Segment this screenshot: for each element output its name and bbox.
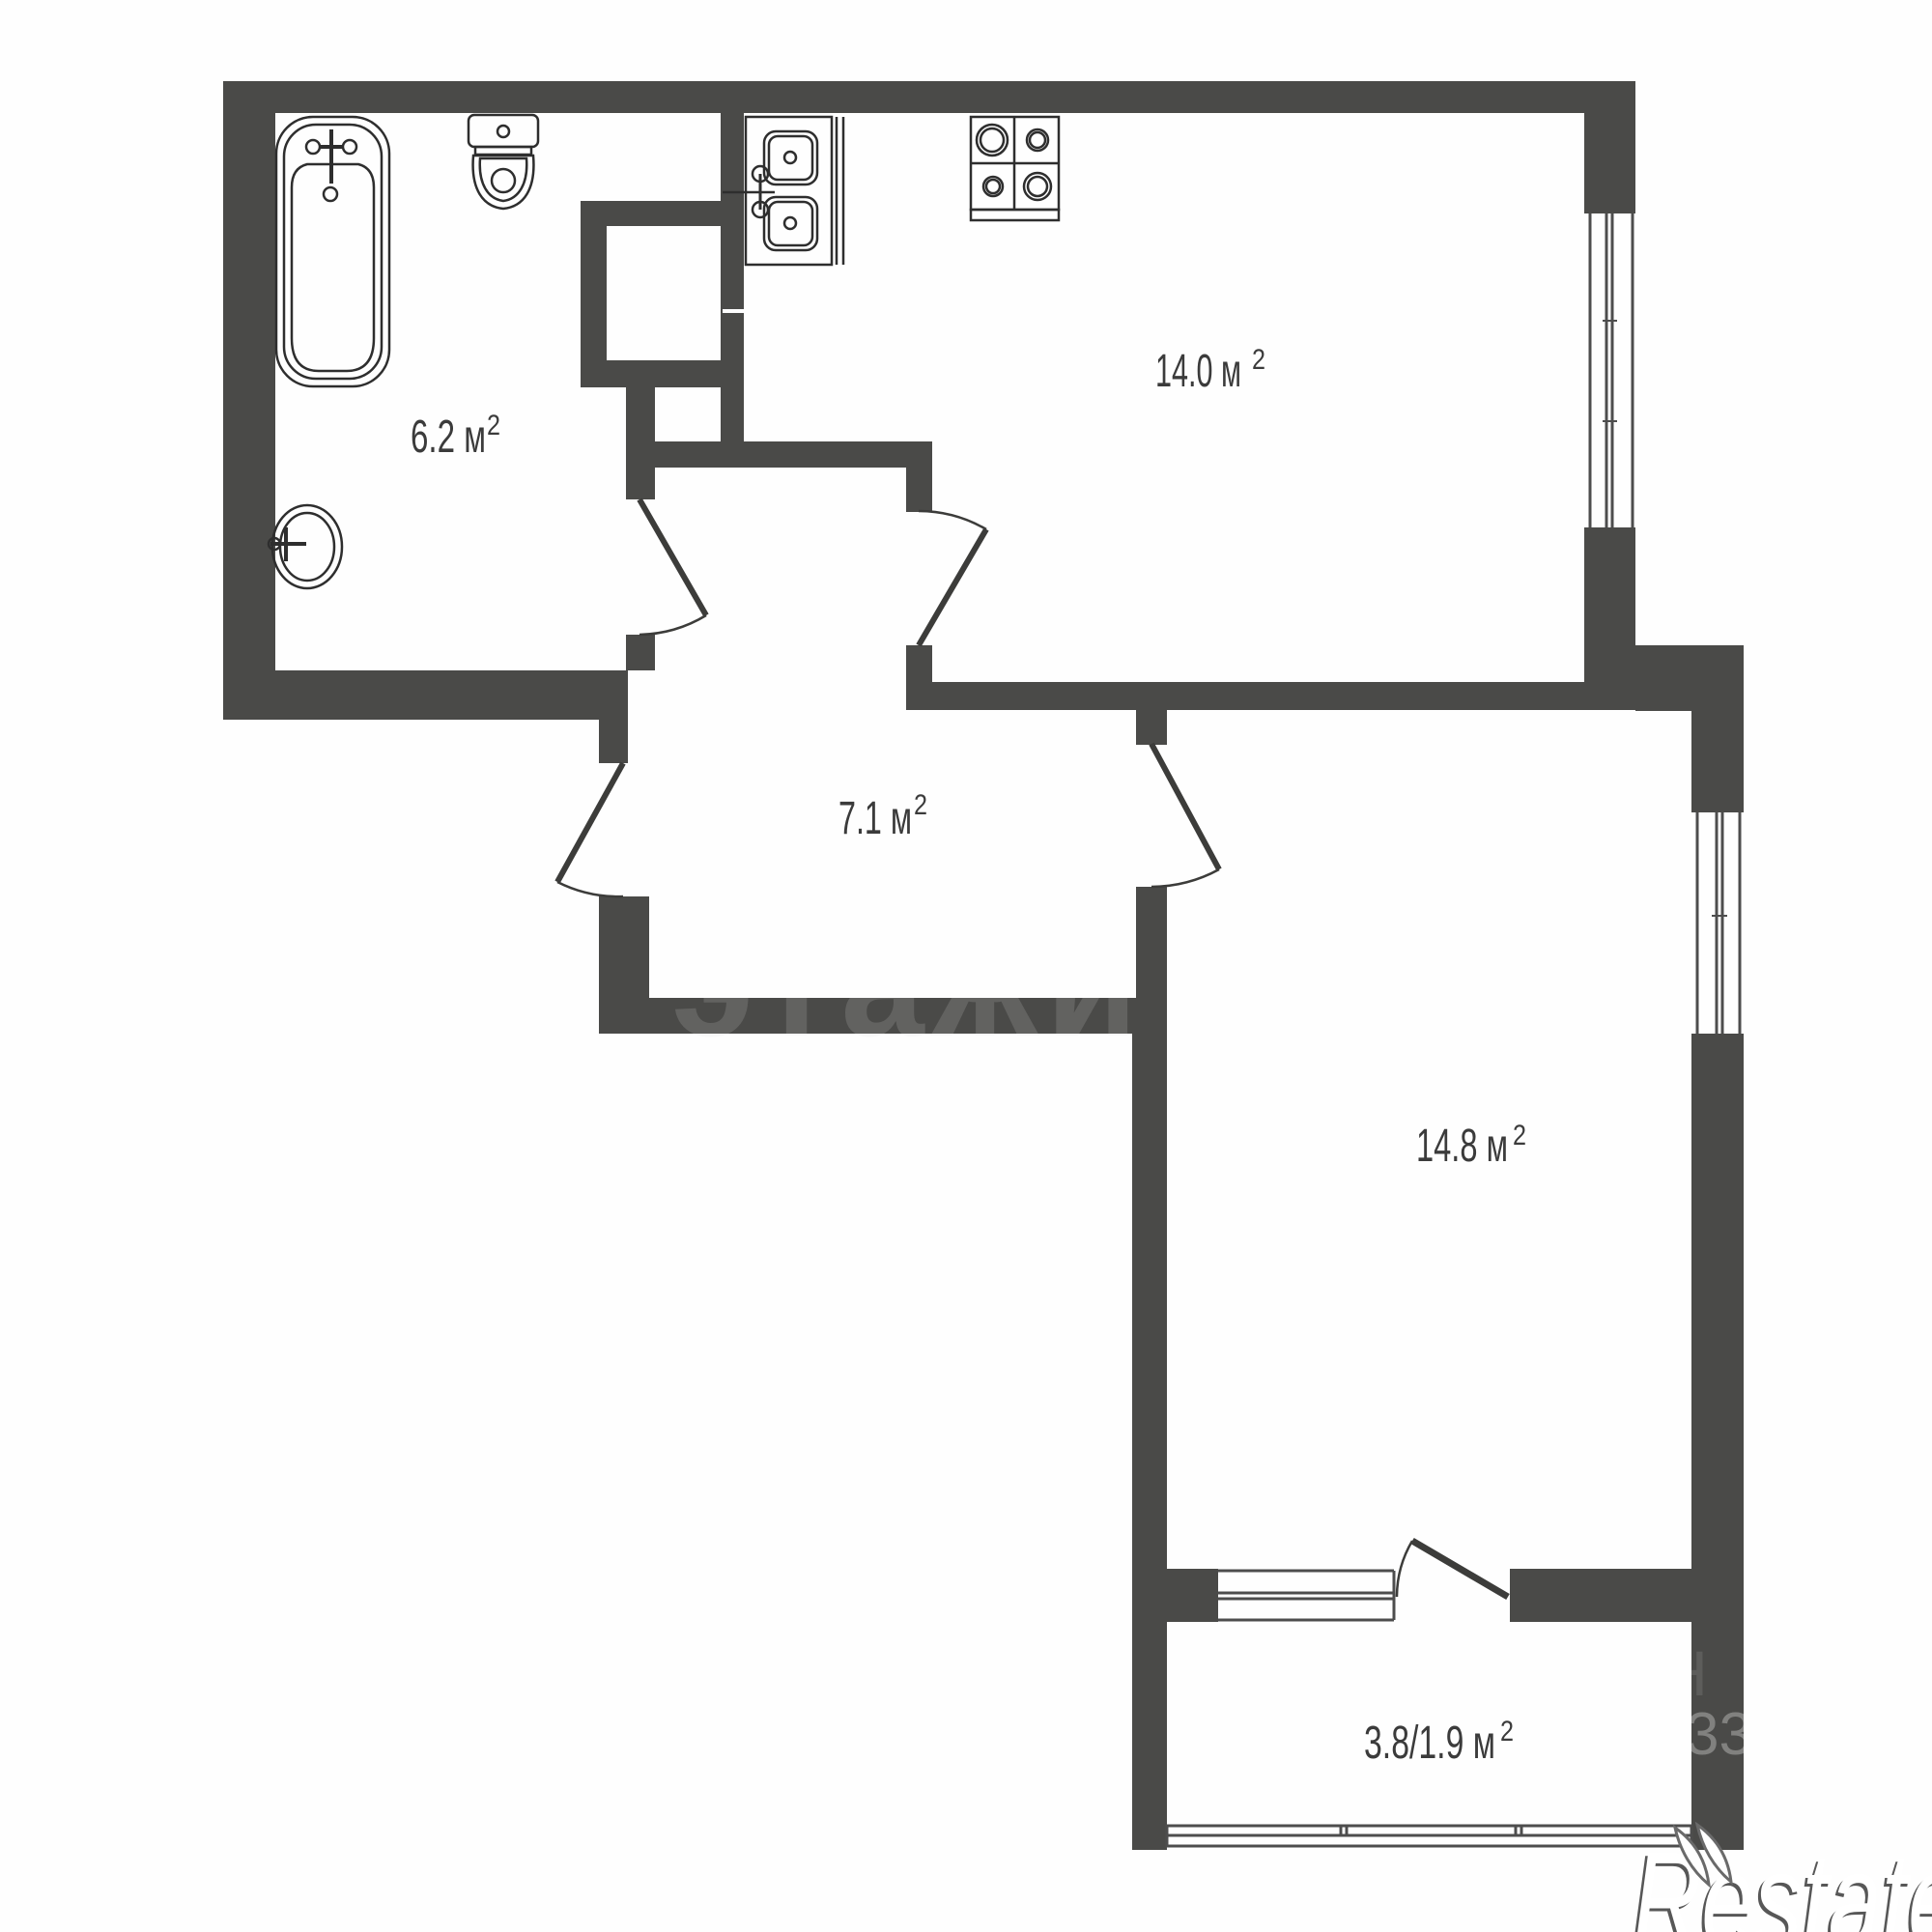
svg-text:33: 33 xyxy=(1686,1701,1752,1768)
svg-text:6.2 м: 6.2 м xyxy=(411,412,486,463)
svg-text:2: 2 xyxy=(1500,1716,1514,1747)
svg-text:14.0 м: 14.0 м xyxy=(1155,346,1241,397)
svg-text:этажи: этажи xyxy=(671,900,1146,1067)
svg-text:3.8/1.9 м: 3.8/1.9 м xyxy=(1364,1718,1495,1769)
svg-text:2: 2 xyxy=(1252,344,1265,376)
svg-text:2: 2 xyxy=(914,789,927,821)
svg-text:2: 2 xyxy=(1513,1120,1526,1151)
svg-text:ДЦШЗЦВИН: ДЦШЗЦВИН xyxy=(1325,1637,1710,1709)
svg-text:2: 2 xyxy=(487,410,500,441)
svg-text:7.1 м: 7.1 м xyxy=(838,793,912,844)
svg-text:14.8 м: 14.8 м xyxy=(1416,1121,1508,1172)
